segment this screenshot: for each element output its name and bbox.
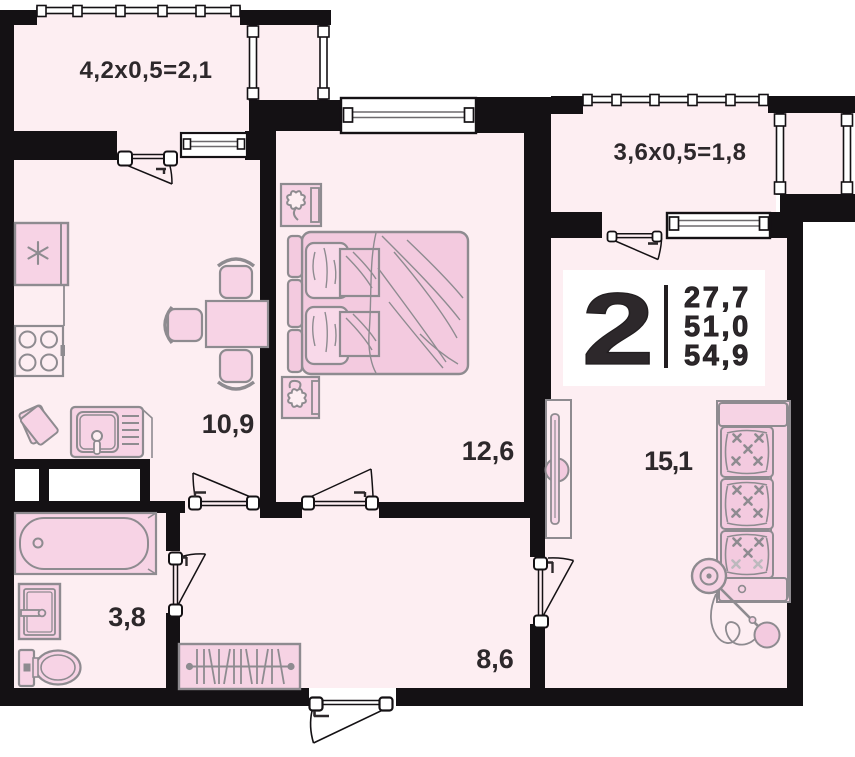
svg-text:15,1: 15,1 xyxy=(644,446,693,476)
svg-text:27,7: 27,7 xyxy=(684,282,751,314)
svg-text:51,0: 51,0 xyxy=(684,311,751,343)
svg-text:3,6x0,5=1,8: 3,6x0,5=1,8 xyxy=(614,139,747,166)
svg-text:3,8: 3,8 xyxy=(108,602,146,632)
svg-text:10,9: 10,9 xyxy=(202,409,255,439)
svg-text:8,6: 8,6 xyxy=(476,644,514,674)
svg-text:12,6: 12,6 xyxy=(462,436,515,466)
svg-text:2: 2 xyxy=(582,272,655,386)
svg-text:4,2x0,5=2,1: 4,2x0,5=2,1 xyxy=(80,57,213,84)
svg-text:54,9: 54,9 xyxy=(684,340,751,372)
